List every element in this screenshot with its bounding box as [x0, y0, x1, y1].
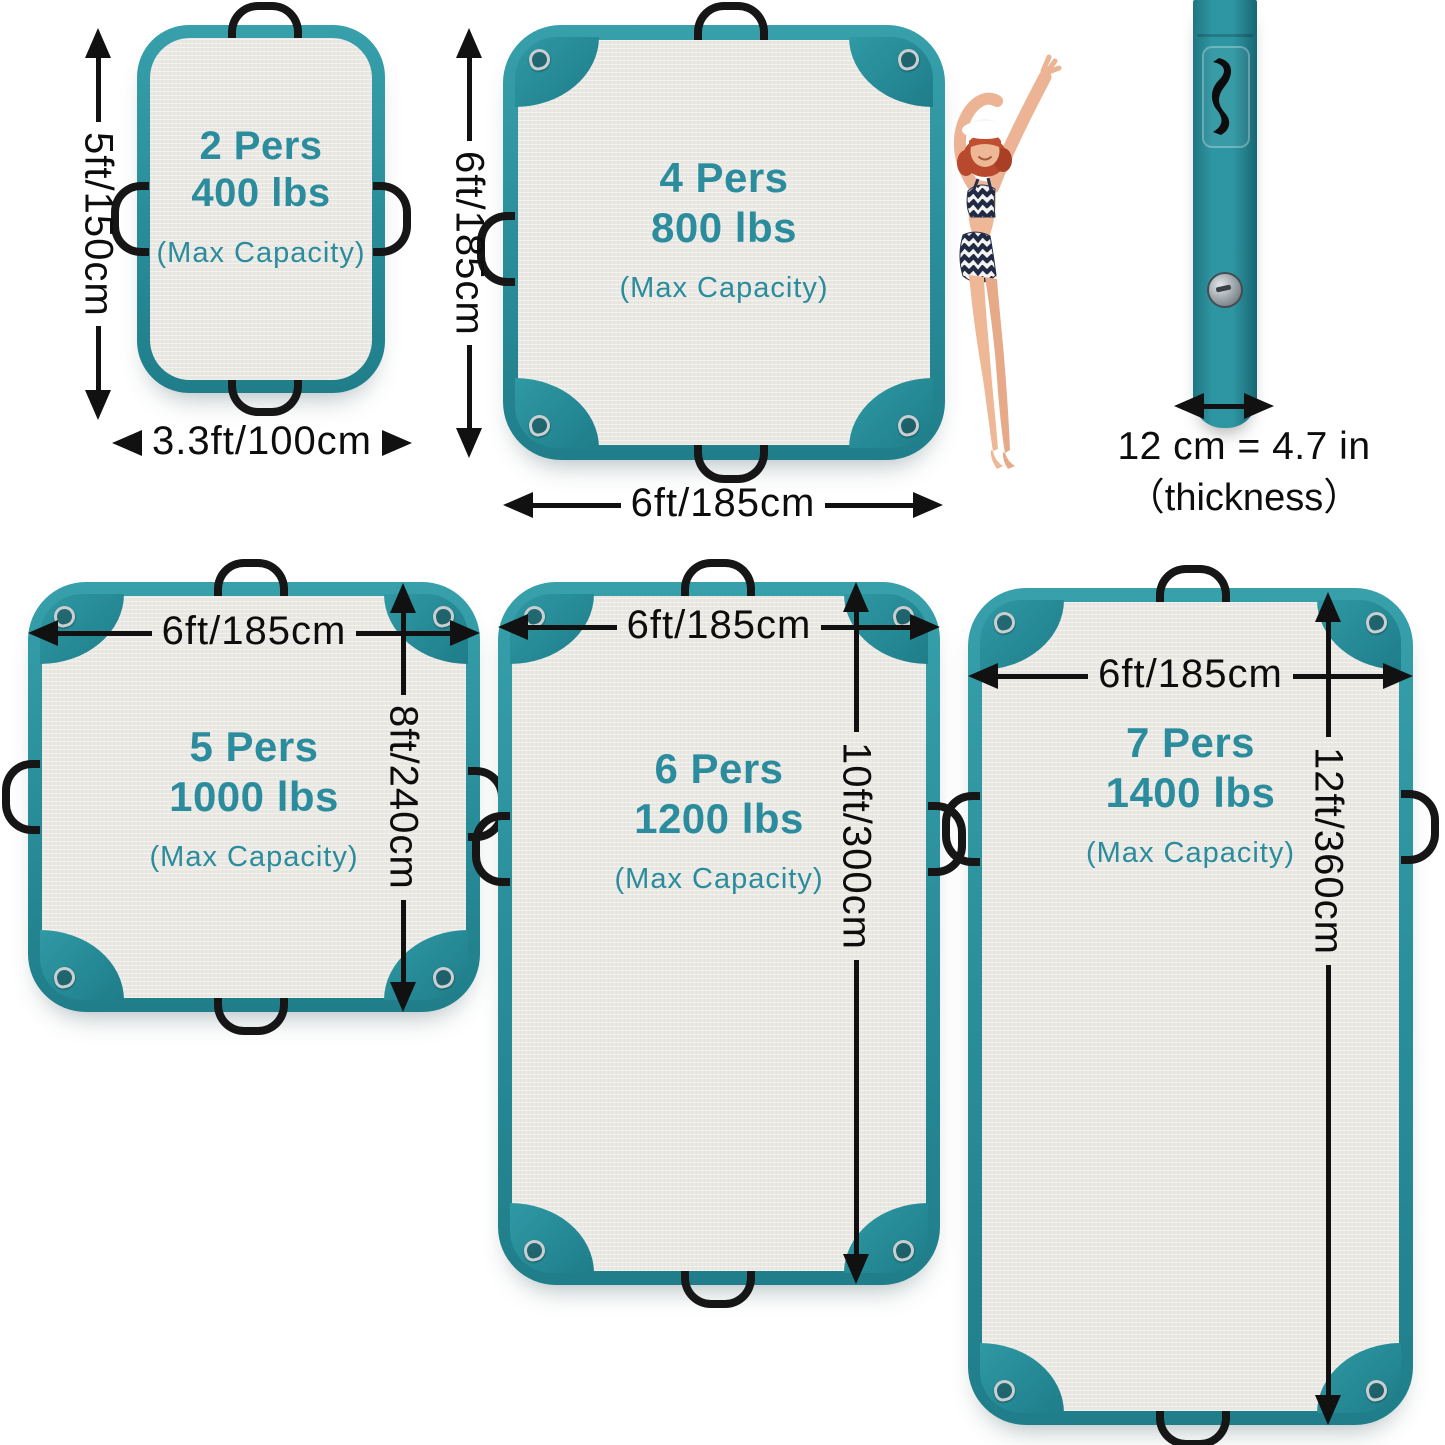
- handle-icon: [1156, 1410, 1230, 1445]
- arrow-down-icon: [843, 1254, 869, 1284]
- platform-2pers: 2 Pers 400 lbs (Max Capacity): [137, 25, 385, 393]
- thickness-note: （thickness）: [1108, 466, 1380, 521]
- dim-label: 6ft/185cm: [617, 603, 822, 648]
- capacity-weight: 400 lbs: [137, 170, 385, 217]
- platform-2pers-capacity: 2 Pers 400 lbs (Max Capacity): [137, 123, 385, 270]
- arrow-down-icon: [1315, 1395, 1341, 1425]
- edge-view-column: [1193, 0, 1257, 428]
- arrow-down-icon: [85, 390, 111, 420]
- platform-4pers: 4 Pers 800 lbs (Max Capacity): [503, 25, 945, 460]
- arrow-up-icon: [843, 582, 869, 612]
- arrow-left-icon: [503, 492, 533, 518]
- dim-2pers-height: 5ft/150cm: [75, 28, 121, 420]
- dim-5pers-height: 8ft/240cm: [380, 583, 426, 1012]
- grommet-icon: [992, 610, 1018, 636]
- handle-icon: [214, 997, 288, 1035]
- arrow-right-icon: [910, 614, 940, 640]
- grommet-icon: [896, 413, 922, 439]
- grommet-icon: [431, 965, 457, 991]
- grommet-icon: [896, 47, 922, 73]
- seam-line: [1197, 34, 1253, 37]
- arrow-down-icon: [390, 982, 416, 1012]
- arrow-left-icon: [968, 663, 998, 689]
- capacity-note: (Max Capacity): [137, 237, 385, 270]
- size-comparison-diagram: 2 Pers 400 lbs (Max Capacity) 5ft/150cm …: [0, 0, 1445, 1445]
- dim-4pers-height: 6ft/185cm: [446, 28, 492, 458]
- arrow-up-icon: [390, 583, 416, 613]
- grommet-icon: [527, 47, 553, 73]
- arrow-up-icon: [456, 28, 482, 58]
- dim-label: 6ft/185cm: [1088, 652, 1293, 697]
- arrow-left-icon: [28, 620, 58, 646]
- grommet-icon: [527, 413, 553, 439]
- dim-label: 10ft/300cm: [834, 732, 879, 960]
- platform-4pers-capacity: 4 Pers 800 lbs (Max Capacity): [503, 153, 945, 305]
- arrow-right-icon: [450, 620, 480, 646]
- grommet-icon: [522, 1238, 548, 1264]
- dim-label: 12ft/360cm: [1306, 737, 1351, 965]
- arrow-left-icon: [498, 614, 528, 640]
- dim-4pers-width: 6ft/185cm: [503, 482, 943, 528]
- dim-label: 8ft/240cm: [381, 695, 426, 900]
- dim-label: 6ft/185cm: [152, 609, 357, 654]
- capacity-note: (Max Capacity): [503, 272, 945, 305]
- swimmer-illustration: [933, 45, 1065, 469]
- handle-icon: [681, 559, 755, 597]
- arrow-right-icon: [913, 492, 943, 518]
- handle-icon: [694, 2, 768, 40]
- dim-thickness: [1174, 383, 1274, 429]
- arrow-up-icon: [1315, 592, 1341, 622]
- grommet-icon: [1364, 1378, 1390, 1404]
- arrow-left-icon: [1174, 393, 1204, 419]
- dim-label: 6ft/185cm: [621, 481, 826, 526]
- valve-icon: [1207, 272, 1243, 308]
- dim-label: 6ft/185cm: [447, 141, 492, 346]
- arrow-right-icon: [382, 430, 412, 456]
- capacity-persons: 4 Pers: [503, 153, 945, 203]
- strap-handle-icon: [1209, 56, 1239, 136]
- dim-6pers-height: 10ft/300cm: [833, 582, 879, 1284]
- dim-2pers-width: 3.3ft/100cm: [112, 420, 408, 466]
- capacity-weight: 800 lbs: [503, 203, 945, 253]
- dim-label: 5ft/150cm: [76, 122, 121, 327]
- arrow-left-icon: [112, 430, 142, 456]
- handle-icon: [214, 559, 288, 597]
- capacity-persons: 2 Pers: [137, 123, 385, 170]
- grommet-icon: [1364, 610, 1390, 636]
- dim-label: 3.3ft/100cm: [142, 419, 382, 464]
- arrow-right-icon: [1244, 393, 1274, 419]
- handle-icon: [694, 445, 768, 483]
- grommet-icon: [52, 965, 78, 991]
- arrow-up-icon: [85, 28, 111, 58]
- thickness-value: 12 cm = 4.7 in: [1108, 425, 1380, 469]
- arrow-down-icon: [456, 428, 482, 458]
- grommet-icon: [891, 1238, 917, 1264]
- handle-icon: [228, 2, 302, 40]
- handle-icon: [228, 378, 302, 416]
- grommet-icon: [992, 1378, 1018, 1404]
- handle-icon: [1156, 565, 1230, 603]
- arrow-right-icon: [1383, 663, 1413, 689]
- handle-icon: [681, 1270, 755, 1308]
- dim-7pers-height: 12ft/360cm: [1305, 592, 1351, 1425]
